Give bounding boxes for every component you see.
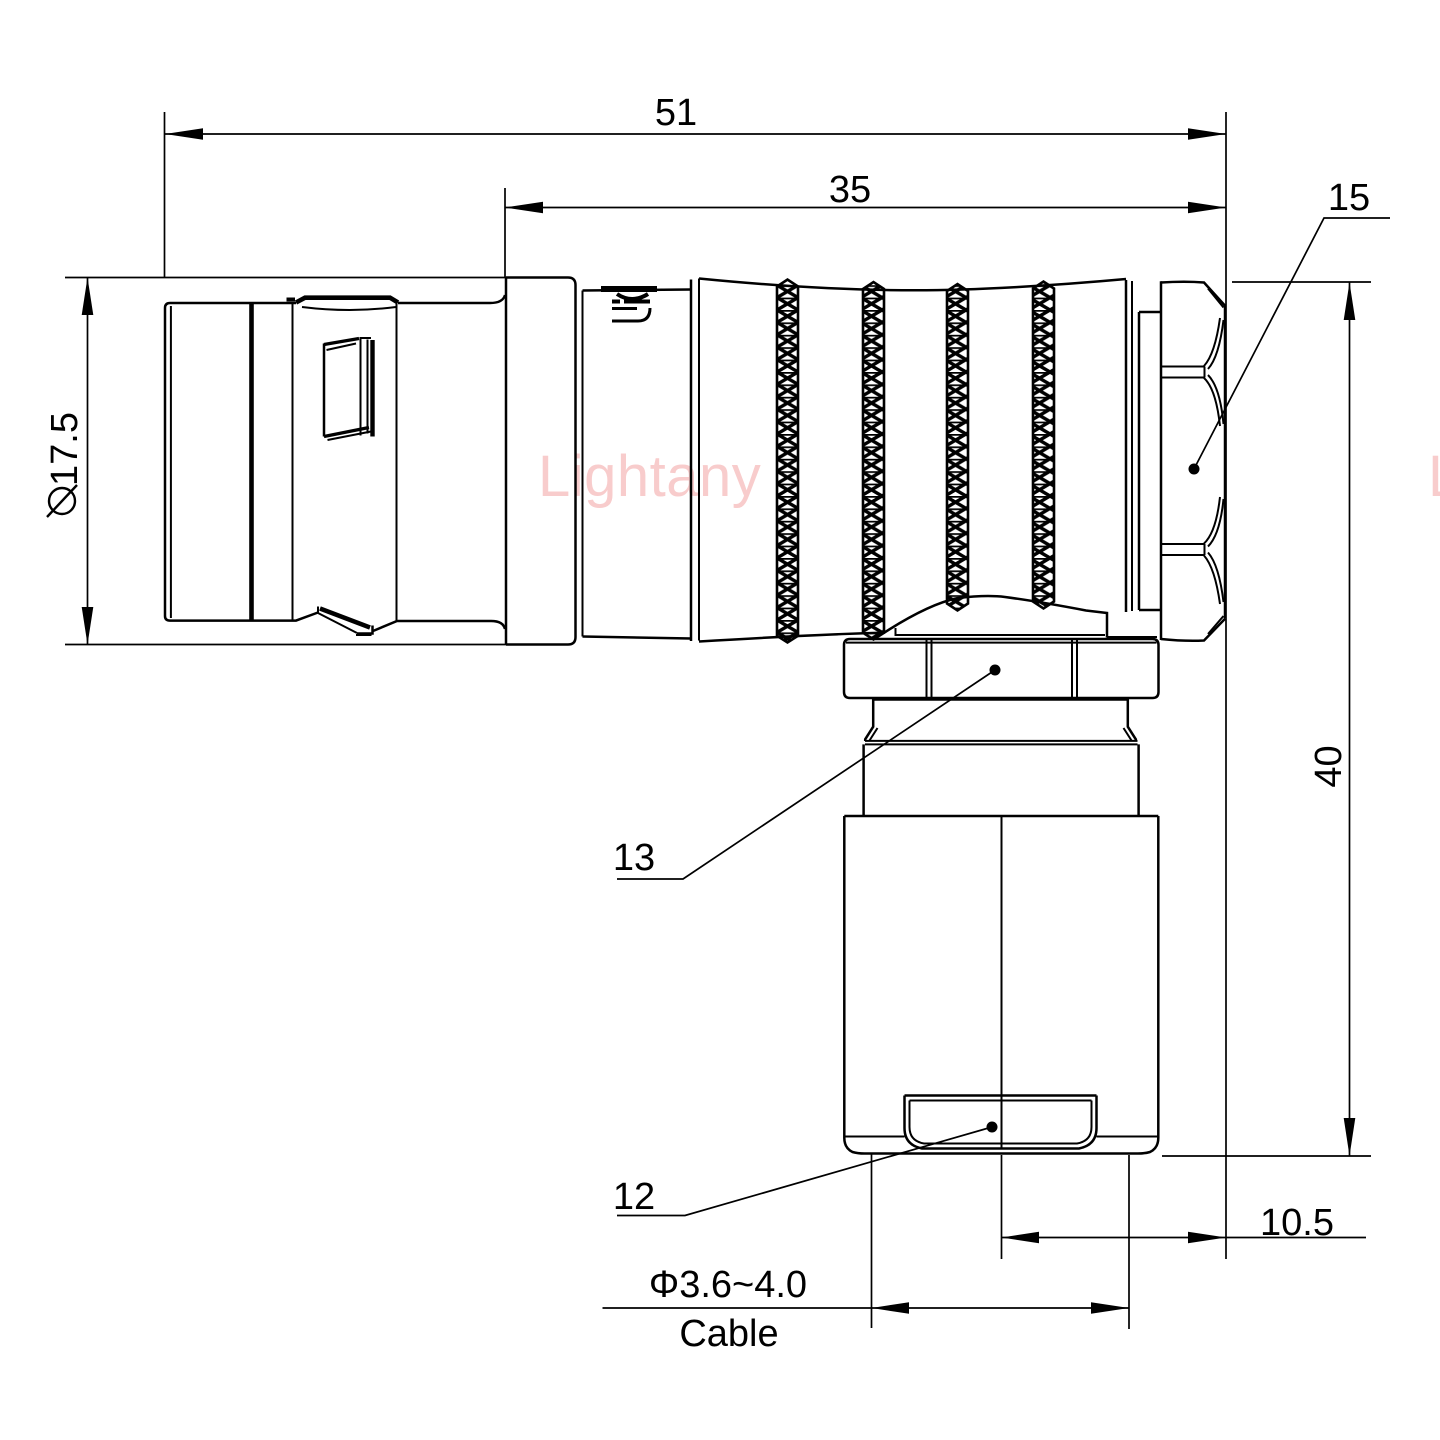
- svg-text:15: 15: [1328, 177, 1370, 219]
- svg-text:Cable: Cable: [679, 1313, 778, 1355]
- svg-text:17.5: 17.5: [44, 412, 86, 486]
- svg-text:10.5: 10.5: [1260, 1202, 1334, 1244]
- svg-text:51: 51: [655, 92, 697, 134]
- svg-text:13: 13: [613, 837, 655, 879]
- svg-text:Lightany: Lightany: [538, 444, 761, 509]
- svg-text:12: 12: [613, 1176, 655, 1218]
- svg-text:L: L: [1428, 444, 1440, 509]
- svg-text:35: 35: [829, 169, 871, 211]
- svg-text:Φ3.6~4.0: Φ3.6~4.0: [649, 1264, 807, 1306]
- svg-text:40: 40: [1308, 745, 1350, 787]
